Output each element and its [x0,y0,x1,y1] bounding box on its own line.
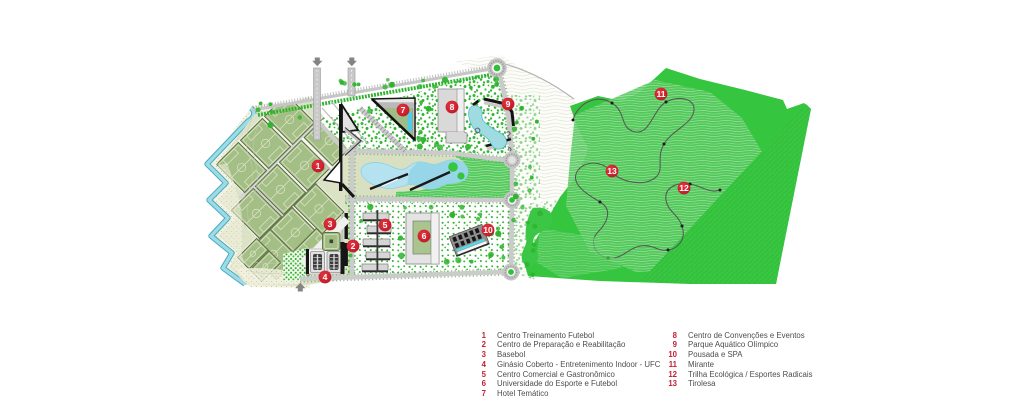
svg-text:6: 6 [422,231,427,241]
svg-text:8: 8 [450,102,455,112]
svg-text:10: 10 [483,225,493,235]
svg-text:4: 4 [323,272,328,282]
svg-text:2: 2 [351,241,356,251]
svg-text:12: 12 [679,183,689,193]
svg-text:7: 7 [401,105,406,115]
svg-text:1: 1 [316,161,321,171]
svg-text:5: 5 [383,220,388,230]
svg-text:9: 9 [506,99,511,109]
svg-text:3: 3 [328,219,333,229]
svg-text:13: 13 [607,166,617,176]
svg-text:11: 11 [656,89,665,99]
